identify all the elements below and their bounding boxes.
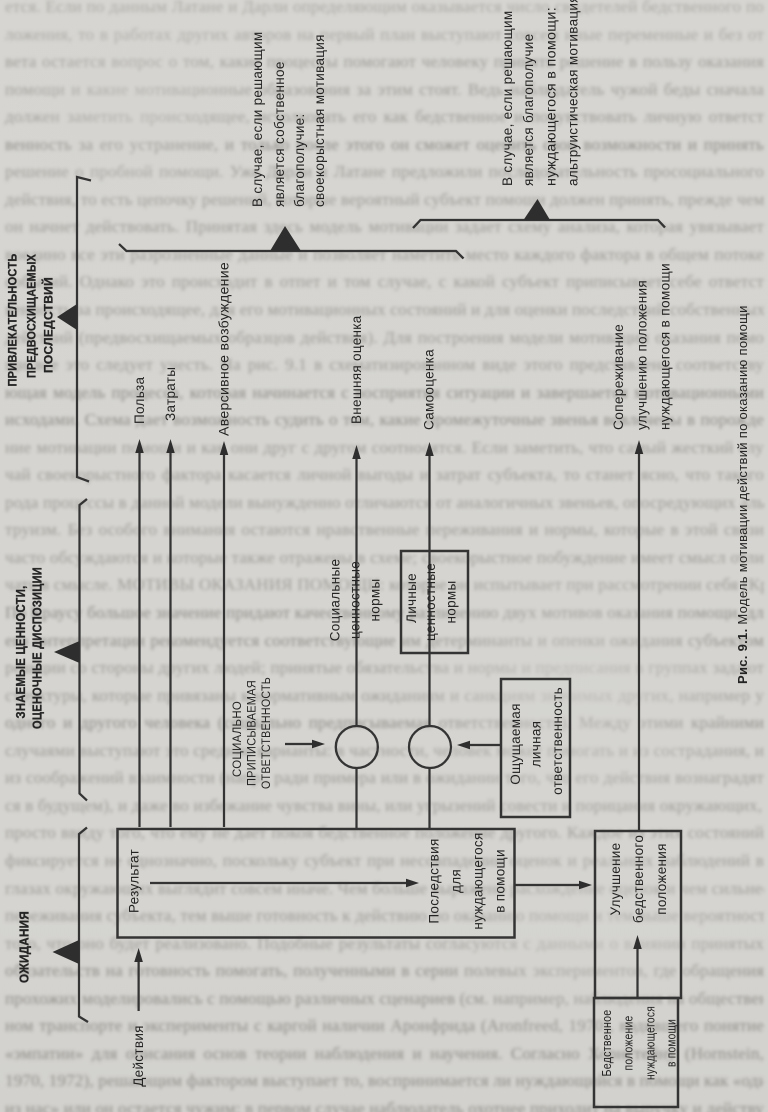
svg-text:ОЖИДАНИЯ: ОЖИДАНИЯ bbox=[17, 911, 32, 983]
svg-text:нуждающегося: нуждающегося bbox=[644, 1006, 658, 1080]
svg-text:ПРЕДВОСХИЩАЕМЫХ: ПРЕДВОСХИЩАЕМЫХ bbox=[25, 254, 39, 378]
svg-text:нормы: нормы bbox=[444, 581, 459, 624]
svg-text:личная: личная bbox=[529, 721, 544, 768]
svg-text:Рис. 9.1. Модель мотивации дей: Рис. 9.1. Модель мотивации действий по о… bbox=[735, 305, 750, 684]
svg-text:Последствия: Последствия bbox=[427, 838, 442, 923]
svg-text:Социальные: Социальные bbox=[328, 559, 343, 642]
svg-text:является собственное: является собственное bbox=[272, 61, 287, 207]
svg-text:ЗНАЕМЫЕ ЦЕННОСТИ,: ЗНАЕМЫЕ ЦЕННОСТИ, bbox=[14, 586, 28, 719]
svg-text:положения: положения bbox=[654, 843, 669, 914]
svg-text:ПРИВЛЕКАТЕЛЬНОСТЬ: ПРИВЛЕКАТЕЛЬНОСТЬ bbox=[6, 253, 20, 386]
svg-text:Ощущаемая: Ощущаемая bbox=[508, 703, 523, 784]
svg-text:Аверсивное возбуждение: Аверсивное возбуждение bbox=[217, 262, 232, 436]
svg-text:бедственного: бедственного bbox=[631, 835, 646, 923]
svg-text:ОТВЕТСТВЕННОСТЬ: ОТВЕТСТВЕННОСТЬ bbox=[259, 677, 273, 789]
svg-text:В случае, если решающим: В случае, если решающим bbox=[250, 32, 265, 207]
svg-text:Личные: Личные bbox=[404, 573, 419, 623]
svg-text:СОЦИАЛЬНО: СОЦИАЛЬНО bbox=[230, 701, 244, 777]
svg-text:Действия: Действия bbox=[131, 1025, 146, 1087]
svg-text:нуждающегося в помощи:: нуждающегося в помощи: bbox=[544, 7, 559, 186]
svg-text:Внешняя оценка: Внешняя оценка bbox=[349, 315, 364, 424]
svg-text:Сопереживание: Сопереживание bbox=[611, 324, 626, 430]
svg-text:ОЦЕНОЧНЫЕ ДИСПОЗИЦИИ: ОЦЕНОЧНЫЕ ДИСПОЗИЦИИ bbox=[30, 567, 44, 729]
svg-text:ценностные: ценностные bbox=[423, 563, 438, 641]
svg-text:альтруистическая мотивация: альтруистическая мотивация bbox=[566, 0, 581, 186]
svg-text:благополучие:: благополучие: bbox=[292, 113, 307, 207]
svg-text:в помощи: в помощи bbox=[665, 1019, 679, 1067]
svg-text:Самооценка: Самооценка bbox=[421, 349, 436, 430]
svg-text:своекорыстная мотивация: своекорыстная мотивация bbox=[312, 34, 327, 207]
svg-text:нормы: нормы bbox=[368, 579, 383, 622]
svg-text:В случае, если решающим: В случае, если решающим bbox=[500, 11, 515, 186]
svg-text:ПРИПИСЫВАЕМАЯ: ПРИПИСЫВАЕМАЯ bbox=[245, 680, 259, 786]
svg-text:в помощи: в помощи bbox=[493, 849, 508, 913]
svg-text:нуждающегося в помощи: нуждающегося в помощи bbox=[658, 263, 673, 430]
svg-text:ответственность: ответственность bbox=[550, 687, 565, 795]
svg-text:ценностные: ценностные bbox=[348, 561, 363, 639]
svg-text:Бедственное: Бедственное bbox=[600, 1010, 614, 1077]
svg-text:нуждающегося: нуждающегося bbox=[471, 832, 486, 929]
svg-text:для: для bbox=[449, 869, 464, 893]
svg-text:Польза: Польза bbox=[132, 376, 147, 424]
svg-text:Результат: Результат bbox=[127, 849, 142, 913]
svg-text:улучшению положения: улучшению положения bbox=[635, 280, 650, 430]
svg-text:Улучшение: Улучшение bbox=[608, 843, 623, 916]
svg-text:положение: положение bbox=[622, 1016, 636, 1071]
svg-text:Затраты: Затраты bbox=[163, 367, 178, 421]
svg-text:ПОСЛЕДСТВИЙ: ПОСЛЕДСТВИЙ bbox=[41, 277, 56, 373]
svg-text:является благополучие: является благополучие bbox=[521, 34, 536, 186]
